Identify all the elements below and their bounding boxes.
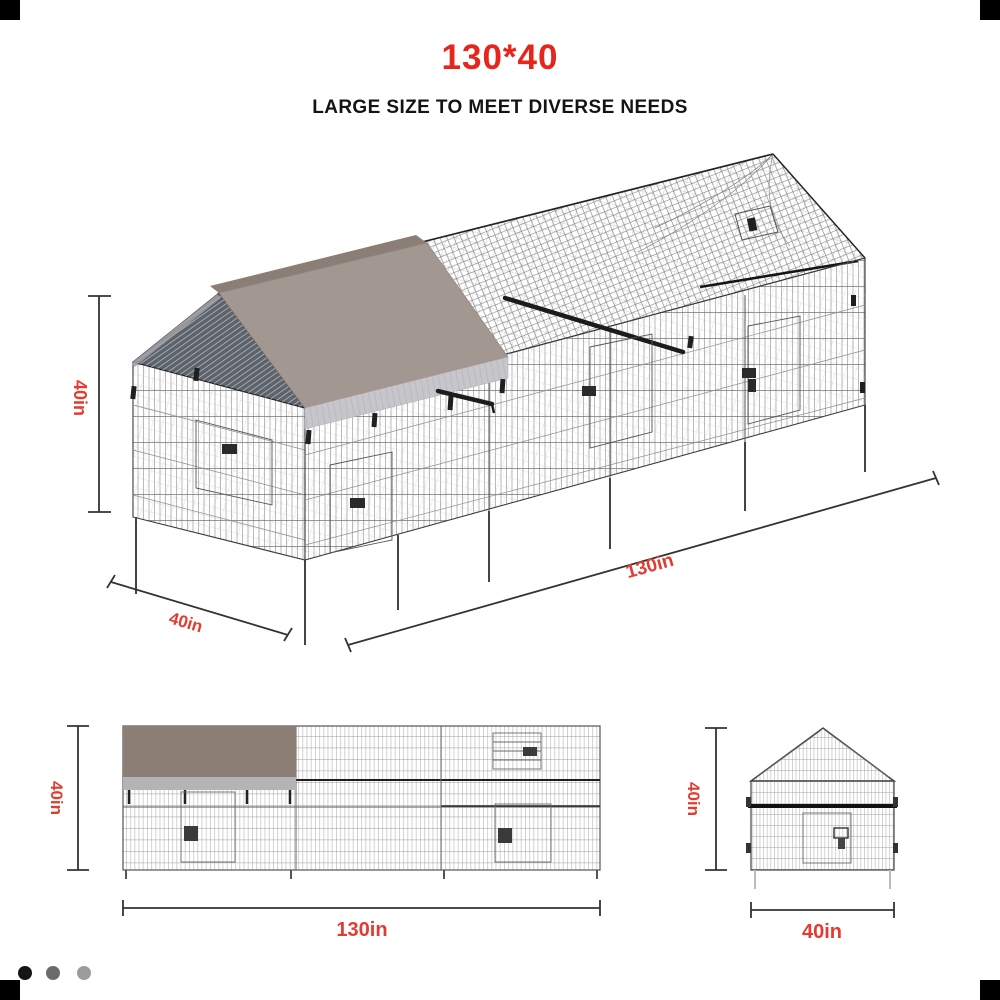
dimension-width-end — [751, 902, 894, 918]
carousel-indicator — [18, 966, 91, 980]
end-view-mesh — [751, 781, 894, 870]
end-view-latch-pin — [838, 838, 845, 849]
front-view-cover-skirt — [123, 777, 296, 790]
dimension-length-3d-label: 130in — [624, 550, 676, 583]
front-view-cover — [123, 726, 296, 777]
end-view-legs — [755, 870, 890, 889]
dimension-height-front — [67, 726, 89, 870]
dimension-height-3d — [88, 296, 111, 512]
front-orthographic-view: 40in 130in — [47, 726, 600, 941]
dimension-height-front-label: 40in — [47, 781, 66, 815]
end-orthographic-view: 40in 40in — [684, 728, 898, 943]
dimension-width-end-label: 40in — [802, 921, 842, 943]
product-image: 130*40 LARGE SIZE TO MEET DIVERSE NEEDS — [0, 0, 1000, 1000]
dimension-height-end — [705, 728, 727, 870]
dimension-height-end-label: 40in — [684, 782, 703, 816]
dimension-diagram: 40in 40in 130in — [0, 0, 1000, 1000]
dimension-height-3d-label: 40in — [70, 380, 90, 416]
dimension-width-front-label: 130in — [336, 919, 387, 941]
front-view-legs — [126, 870, 597, 879]
end-view-gable — [751, 728, 894, 781]
carousel-dot-1[interactable] — [18, 966, 32, 980]
carousel-dot-2[interactable] — [46, 966, 60, 980]
carousel-dot-3[interactable] — [77, 966, 91, 980]
dimension-width-front — [123, 900, 600, 916]
dimension-depth-3d-label: 40in — [167, 609, 205, 637]
main-3d-view: 40in 40in 130in — [70, 154, 939, 652]
